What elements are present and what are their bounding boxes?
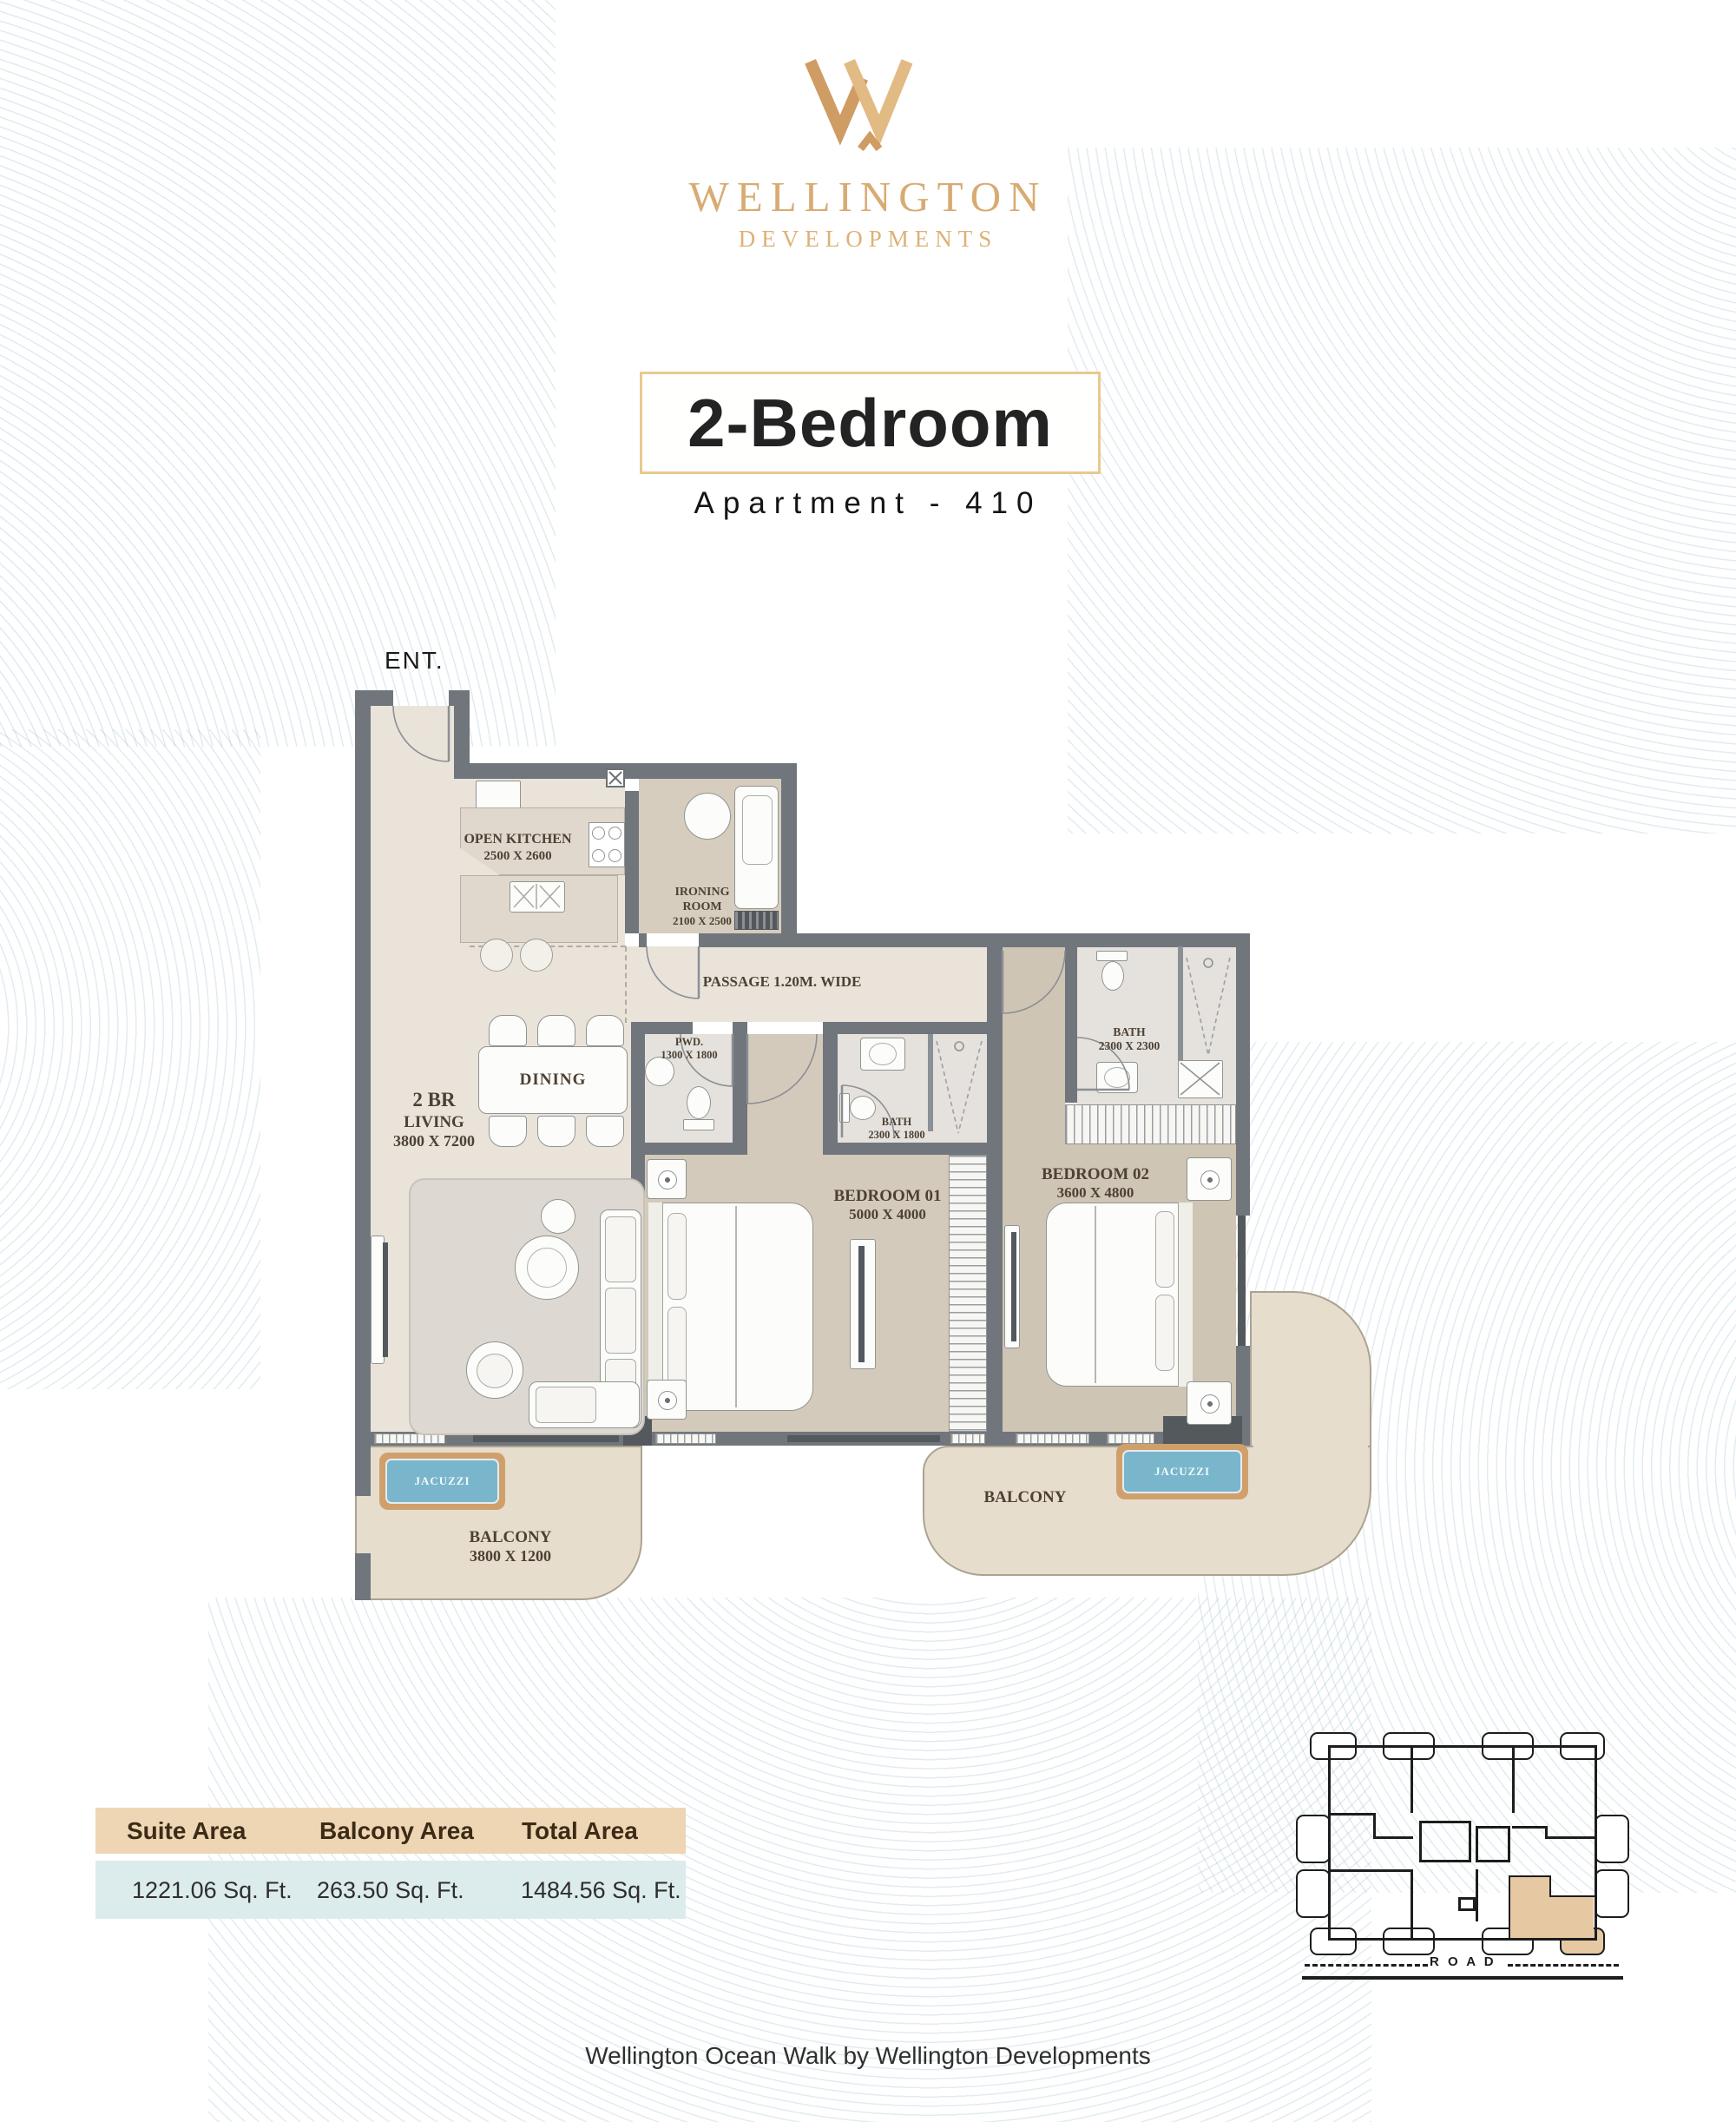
tv-bedroom1 (858, 1246, 865, 1362)
jacuzzi-right: JACUZZI (1116, 1444, 1248, 1499)
brand-division: DEVELOPMENTS (521, 226, 1215, 253)
wellington-monogram-icon (803, 52, 933, 156)
wall (699, 933, 1248, 947)
balcony-pier (355, 1553, 371, 1600)
door-arc-entry (393, 706, 449, 761)
label-bath2: BATH 2300 X 2300 (1079, 1025, 1180, 1054)
wall (823, 1022, 838, 1143)
keyplan-core (1458, 1897, 1476, 1911)
wall (1236, 933, 1250, 1216)
keyplan-balcony-tab (1595, 1815, 1629, 1863)
wall (823, 1143, 987, 1155)
suite-area-header: Suite Area (127, 1817, 246, 1845)
wall (631, 1143, 747, 1155)
road-label: R O A D (1430, 1954, 1496, 1969)
jacuzzi-right-label: JACUZZI (1122, 1450, 1242, 1493)
label-bedroom2: BEDROOM 02 3600 X 4800 (1022, 1164, 1169, 1203)
floor-plan: ENT. (343, 647, 1376, 1663)
keyplan-wall (1476, 1869, 1478, 1921)
electrical-panel-icon (606, 768, 625, 788)
armchair-seat (477, 1354, 513, 1388)
laundry-basket (684, 793, 731, 840)
dining-chair (586, 1116, 624, 1147)
label-passage: PASSAGE 1.20M. WIDE (671, 973, 893, 992)
dining-label: DINING (520, 1070, 587, 1090)
kitchen-stool (520, 939, 553, 972)
suite-area-value: 1221.06 Sq. Ft. (132, 1877, 293, 1904)
door-arc-bedroom1 (747, 1034, 817, 1104)
wall (454, 690, 470, 779)
key-plan: R O A D (1289, 1723, 1662, 1984)
cooktop (589, 822, 625, 867)
pwd-toilet-tank (683, 1119, 714, 1130)
wall (733, 1022, 747, 1155)
sofa-cushion (605, 1216, 636, 1282)
keyplan-wall (1373, 1813, 1376, 1839)
keyplan-unit-line (1509, 1875, 1510, 1939)
wave-pattern-left (0, 729, 260, 1389)
bath2-toilet-tank (1096, 951, 1128, 961)
door-arc-bedroom2 (1003, 951, 1065, 1013)
footer-text: Wellington Ocean Walk by Wellington Deve… (0, 2042, 1736, 2070)
blanket-line (735, 1206, 737, 1407)
kitchen-sink (510, 881, 565, 913)
balcony-right-upper (1250, 1291, 1371, 1449)
label-living: 2 BR LIVING 3800 X 7200 (378, 1088, 490, 1151)
road-solid-line (1302, 1976, 1623, 1980)
keyplan-balcony-tab (1595, 1869, 1629, 1918)
sofa-cushion (536, 1387, 596, 1423)
dining-chair (489, 1015, 527, 1046)
wall (639, 933, 647, 947)
side-ottoman (541, 1199, 575, 1234)
wall (987, 946, 1003, 1446)
wall (645, 1022, 693, 1034)
keyplan-balcony-tab (1296, 1815, 1331, 1863)
wall (470, 763, 797, 779)
tv-living (383, 1242, 388, 1357)
keyplan-core (1419, 1821, 1471, 1862)
wall (823, 1022, 987, 1034)
pwd-toilet (687, 1086, 711, 1119)
dining-chair (586, 1015, 624, 1046)
dining-chair (537, 1116, 575, 1147)
total-area-header: Total Area (522, 1817, 638, 1845)
keyplan-wall (1545, 1836, 1597, 1839)
bath1-basin (869, 1043, 897, 1065)
area-table: Suite Area Balcony Area Total Area 1221.… (95, 1808, 686, 1922)
balcony-pier (355, 1446, 371, 1496)
coffee-table-inner (527, 1248, 567, 1288)
jacuzzi-left: JACUZZI (379, 1453, 505, 1510)
window (1107, 1433, 1154, 1444)
dining-table: DINING (478, 1046, 628, 1114)
tv-bedroom2 (1011, 1232, 1016, 1341)
pillow (1155, 1295, 1174, 1371)
passage-dining-dashed-line (625, 946, 627, 1023)
balcony-area-value: 263.50 Sq. Ft. (317, 1877, 464, 1904)
lamp-icon (1200, 1170, 1220, 1190)
label-pwd: PWD. 1300 X 1800 (647, 1036, 732, 1063)
road-dashed-line (1508, 1964, 1619, 1967)
bath2-wardrobe (1065, 1104, 1236, 1144)
total-area-value: 1484.56 Sq. Ft. (521, 1877, 681, 1904)
window (950, 1433, 985, 1444)
pillow (667, 1213, 687, 1300)
sliding-door-living (473, 1435, 619, 1442)
sofa-cushion (605, 1288, 636, 1354)
pillow (1155, 1211, 1174, 1288)
blanket-line (1095, 1206, 1096, 1383)
keyplan-wall (1410, 1745, 1413, 1813)
keyplan-wall (1410, 1869, 1413, 1941)
unit-type-title-box: 2-Bedroom (640, 372, 1101, 474)
keyplan-unit-line (1549, 1875, 1551, 1897)
lamp-icon (1200, 1394, 1220, 1414)
entrance-label: ENT. (385, 647, 444, 675)
balcony-join-patch (1253, 1442, 1368, 1451)
window (655, 1433, 716, 1444)
sliding-door-bedroom1 (787, 1435, 940, 1442)
lamp-icon (658, 1391, 677, 1410)
wave-pattern-top-left (0, 0, 556, 747)
label-balcony-right: BALCONY (963, 1487, 1088, 1507)
label-ironing-room: IRONING ROOM 2100 X 2500 (655, 885, 749, 928)
window (1016, 1433, 1089, 1444)
lamp-icon (658, 1170, 677, 1190)
wall (781, 763, 797, 947)
brand-name: WELLINGTON (521, 172, 1215, 221)
sliding-door-bedroom2 (1238, 1216, 1246, 1346)
keyplan-unit-line (1509, 1875, 1550, 1877)
label-balcony-left: BALCONY 3800 X 1200 (445, 1527, 575, 1566)
bath2-toilet (1101, 961, 1124, 991)
label-bedroom1: BEDROOM 01 5000 X 4000 (816, 1186, 959, 1224)
apartment-number: Apartment - 410 (521, 486, 1215, 521)
bath2-floor-drain (1178, 1060, 1223, 1098)
unit-type-title: 2-Bedroom (687, 384, 1053, 463)
wall (625, 791, 639, 933)
keyplan-core (1476, 1826, 1510, 1862)
keyplan-wall (1328, 1813, 1376, 1816)
bath2-shower (1183, 951, 1233, 1060)
kitchen-stool (480, 939, 513, 972)
keyplan-balcony-tab (1296, 1869, 1331, 1918)
keyplan-unit-line (1549, 1895, 1595, 1897)
label-bath1: BATH 2300 X 1800 (844, 1116, 950, 1143)
dining-chair (537, 1015, 575, 1046)
wall (1065, 946, 1077, 1103)
label-open-kitchen: OPEN KITCHEN 2500 X 2600 (450, 831, 585, 864)
keyplan-wall (1512, 1826, 1547, 1829)
wall (355, 690, 371, 1446)
road-dashed-line (1305, 1964, 1428, 1967)
headboard (1178, 1203, 1193, 1387)
jacuzzi-left-label: JACUZZI (385, 1459, 499, 1504)
balcony-area-header: Balcony Area (319, 1817, 474, 1845)
brochure-page: { "brand": { "name": "WELLINGTON", "divi… (0, 0, 1736, 2122)
dining-chair (489, 1116, 527, 1147)
keyplan-wall (1373, 1836, 1413, 1839)
keyplan-wall (1512, 1745, 1515, 1813)
keyplan-wall (1328, 1869, 1412, 1872)
